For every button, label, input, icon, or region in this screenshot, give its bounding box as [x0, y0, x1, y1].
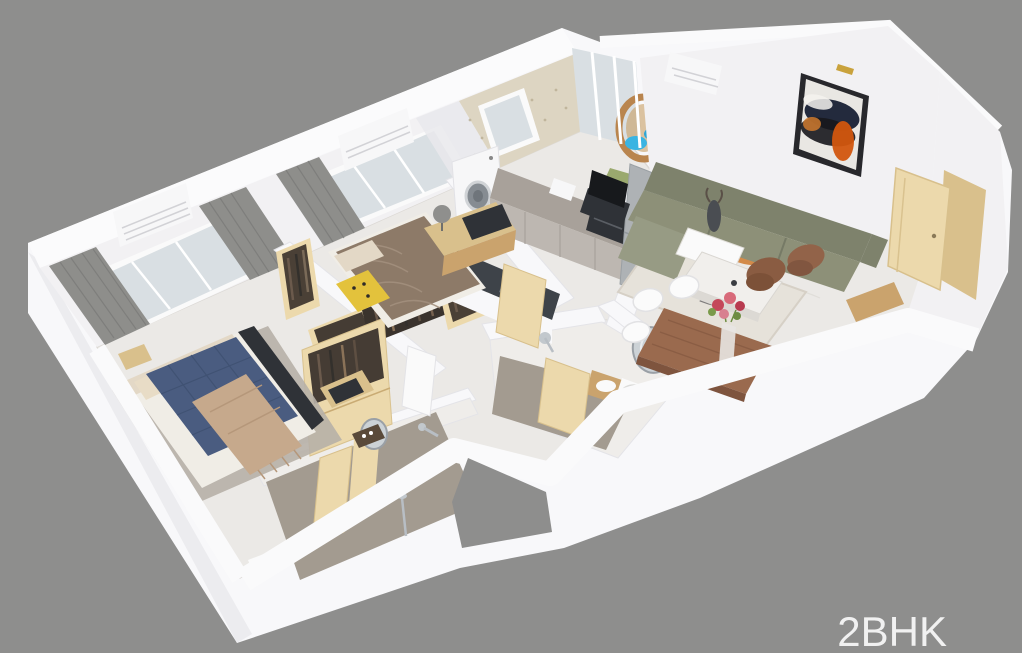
- vanity-sink: [596, 380, 616, 392]
- blue-cushion: [625, 136, 647, 150]
- apartment-3d-scene: [0, 0, 1022, 653]
- door-handle: [932, 234, 936, 238]
- floor-plan-render: 2BHK: [0, 0, 1022, 653]
- corridor-door-leaf: [402, 346, 436, 416]
- plan-type-label: 2BHK: [837, 611, 947, 653]
- figurine: [707, 200, 721, 232]
